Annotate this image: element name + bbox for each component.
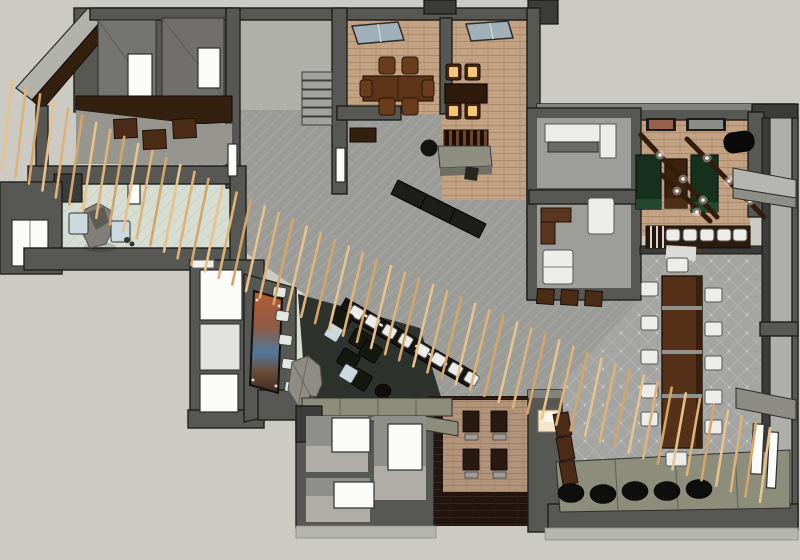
tan-rug <box>443 400 533 492</box>
staff-rooms-divider <box>529 190 641 204</box>
floorplan-render <box>0 0 800 560</box>
art-mural <box>250 291 282 393</box>
stair-panel-3 <box>200 374 238 412</box>
south-east-sliver <box>545 528 798 540</box>
round-table <box>421 140 438 157</box>
room1-sofa-b <box>600 124 616 158</box>
restroom-door-1 <box>332 418 370 452</box>
stair-panel-1 <box>200 270 242 320</box>
nw-window-2 <box>198 48 220 88</box>
plant <box>124 237 130 243</box>
games-bar-hatch <box>646 226 664 248</box>
nw-window-1 <box>128 54 152 98</box>
host-stool <box>464 166 479 181</box>
restroom-corridor-tiles <box>302 398 452 416</box>
nw-door-1 <box>228 144 237 176</box>
dining-table-2 <box>445 84 487 103</box>
restroom-door-2 <box>388 424 422 470</box>
floorplan-canvas <box>0 0 800 560</box>
host-stand <box>438 146 492 168</box>
restrooms-south-sliver <box>296 526 436 538</box>
waiting-cubes <box>536 288 602 306</box>
restroom-door-3 <box>334 482 374 508</box>
stair-room <box>192 260 242 412</box>
room1-bench <box>548 142 598 152</box>
north-wall-tab-1 <box>424 0 456 14</box>
games-bar-stools <box>666 229 747 241</box>
room2-lounge <box>588 198 614 234</box>
east-wall-joint <box>760 322 798 336</box>
room1-sofa-a <box>545 124 603 142</box>
nw-door-2 <box>336 148 345 182</box>
stair <box>302 72 332 125</box>
north-wall <box>90 8 545 20</box>
console <box>350 128 376 142</box>
stair-panel-2 <box>200 324 240 370</box>
